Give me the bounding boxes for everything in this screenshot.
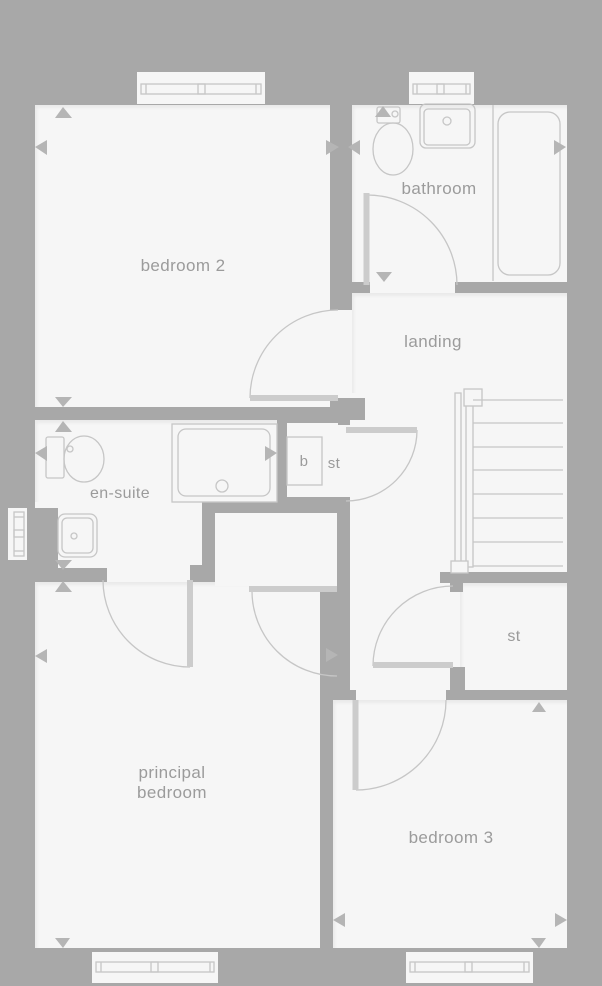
toilet-icon (46, 436, 104, 482)
bathtub-icon (493, 105, 560, 281)
room-label-bedroom2: bedroom 2 (141, 256, 226, 276)
room-label-bedroom3: bedroom 3 (409, 828, 494, 848)
shower-icon (172, 424, 277, 502)
room-label-ensuite: en-suite (90, 484, 150, 504)
dimension-marker (35, 106, 567, 948)
room-label-principal: principal bedroom (137, 763, 207, 803)
room-label-principal-line2: bedroom (137, 783, 207, 802)
stairs-icon (451, 389, 563, 573)
sink-icon (420, 104, 475, 148)
door-arc (103, 195, 457, 790)
floor-plan: bedroom 2 bathroom landing en-suite b st… (0, 0, 602, 986)
room-label-landing: landing (404, 332, 462, 352)
door-leaf (187, 193, 453, 790)
room-label-bathroom: bathroom (401, 179, 476, 199)
sink-icon (58, 514, 97, 557)
label-cupboard-st: st (328, 454, 340, 474)
label-store-st: st (507, 627, 520, 647)
toilet-icon (373, 107, 413, 175)
label-boiler: b (300, 452, 309, 472)
room-label-principal-line1: principal (139, 763, 206, 782)
